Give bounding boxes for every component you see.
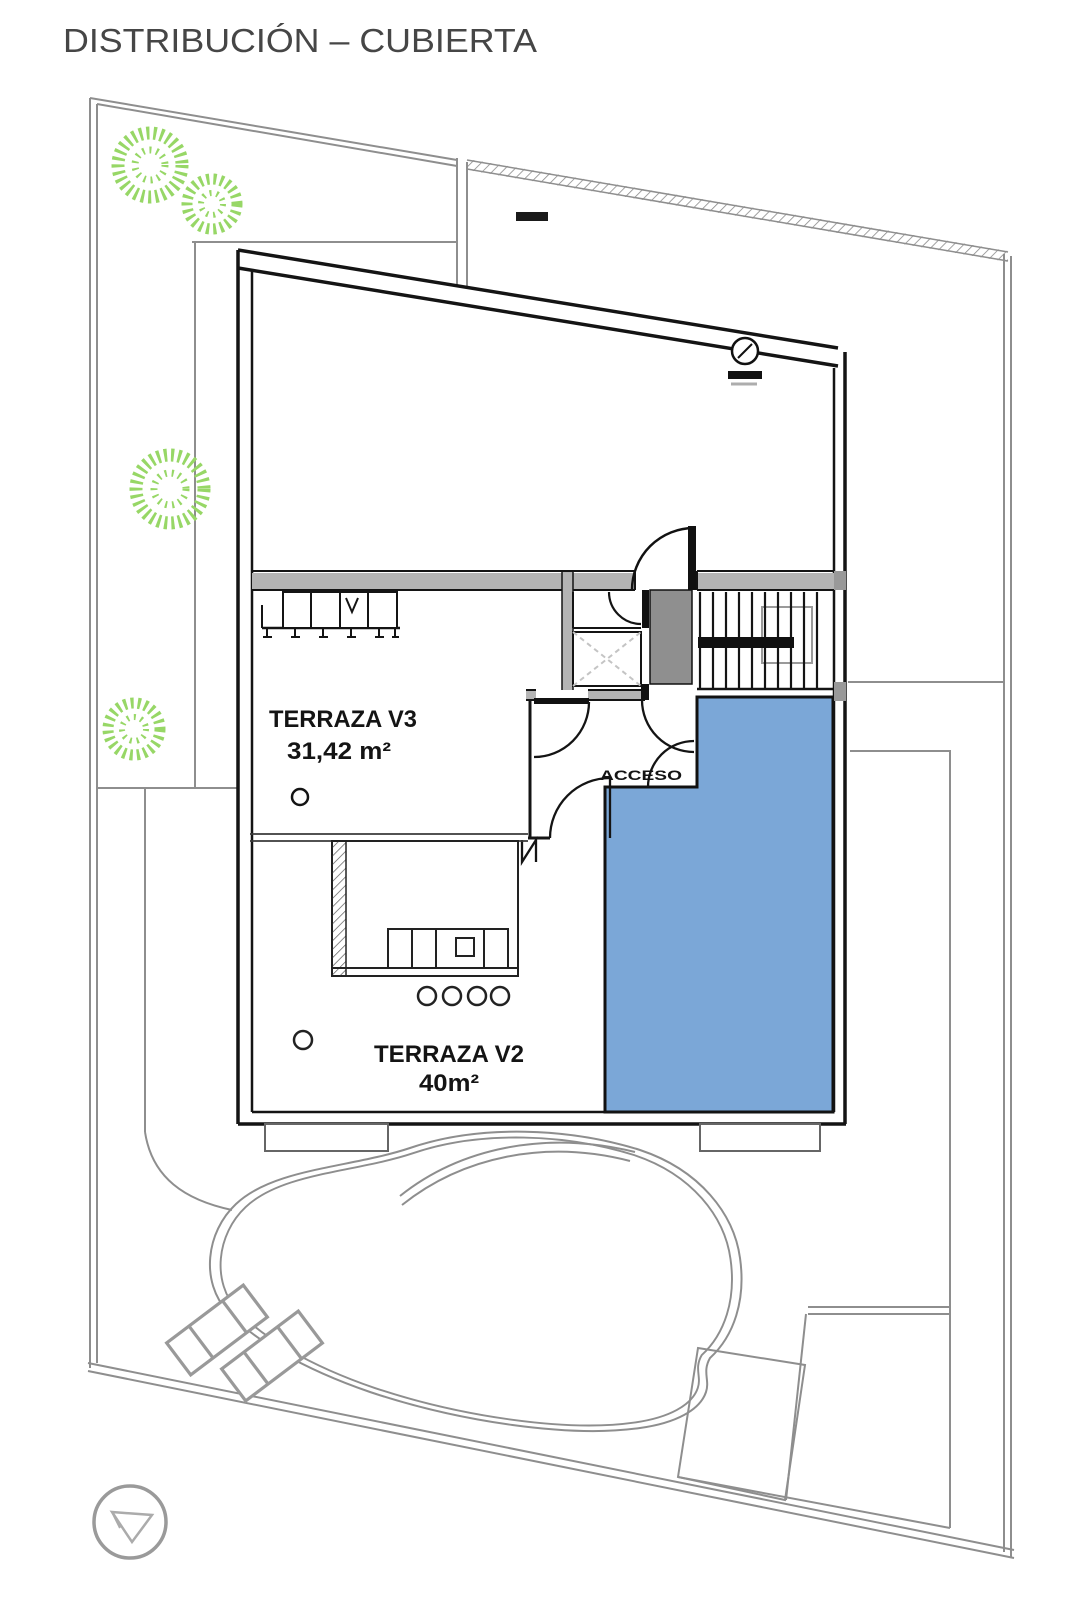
- elevator: [573, 632, 641, 686]
- core-wall-band: [252, 571, 846, 701]
- page-title: DISTRIBUCIÓN – CUBIERTA: [63, 22, 537, 59]
- floor-plan-sheet: DISTRIBUCIÓN – CUBIERTA TERRAZA V3 31,42…: [0, 0, 1084, 1600]
- pool: [210, 1132, 742, 1431]
- trees: [108, 133, 237, 755]
- roof-vent-icon: [728, 338, 762, 384]
- door-arc: [632, 526, 696, 590]
- pool-roof-area: [605, 697, 833, 1112]
- north-arrow-icon: [94, 1486, 166, 1558]
- floor-plan-drawing: DISTRIBUCIÓN – CUBIERTA TERRAZA V3 31,42…: [0, 0, 1084, 1600]
- terraza-v2-features: [294, 841, 518, 1049]
- tree-icon: [187, 179, 237, 229]
- machine-room: [573, 592, 641, 628]
- roof-mark: [516, 212, 548, 221]
- tree-icon: [108, 703, 160, 755]
- room-label-terraza-v2: TERRAZA V2: [374, 1041, 524, 1068]
- room-label-terraza-v3: TERRAZA V3: [269, 706, 417, 733]
- hatched-boundary: [467, 159, 1008, 262]
- tree-icon: [136, 455, 204, 523]
- door-leaf: [642, 590, 649, 628]
- room-area-terraza-v3: 31,42 m²: [287, 738, 391, 765]
- room-area-terraza-v2: 40m²: [419, 1070, 479, 1097]
- acceso-label: ACCESO: [600, 768, 682, 783]
- tree-icon: [118, 133, 182, 197]
- shaft-wall: [650, 590, 692, 684]
- stairs: [697, 592, 834, 689]
- core-left-wall: [562, 572, 573, 690]
